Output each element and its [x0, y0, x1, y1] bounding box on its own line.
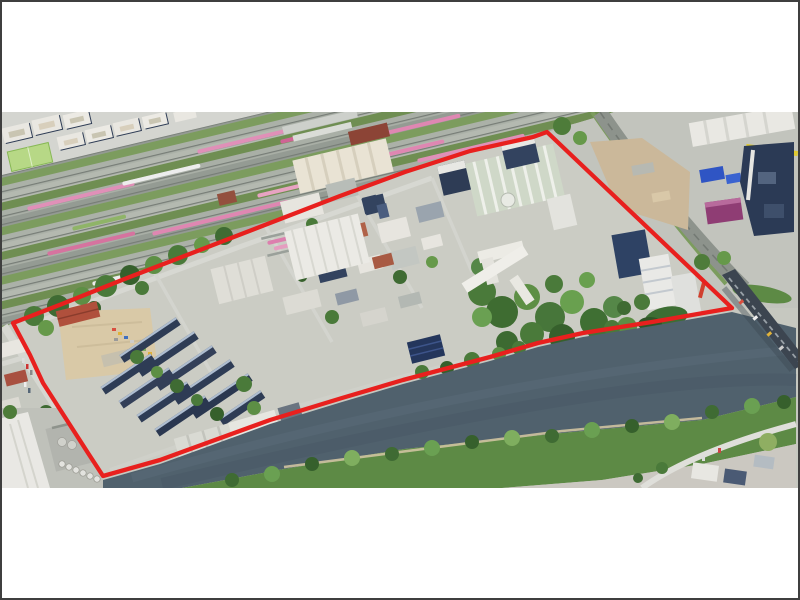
aerial-photo	[2, 112, 798, 488]
aerial-photo-canvas	[2, 112, 798, 488]
lawn	[759, 433, 777, 451]
page	[0, 0, 800, 600]
dome	[501, 193, 515, 207]
